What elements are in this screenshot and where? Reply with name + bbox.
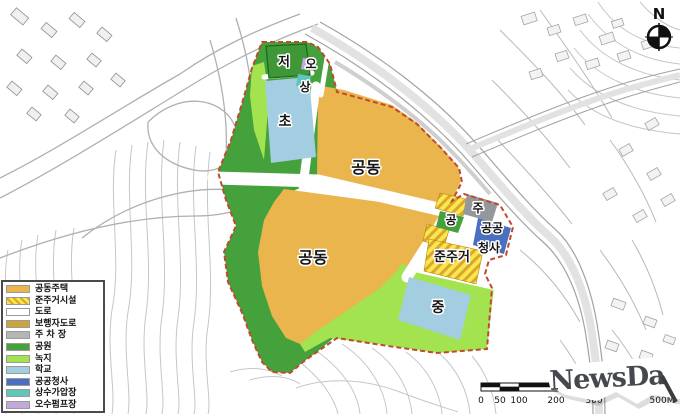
legend-item-parking: 주 차 장: [6, 330, 100, 340]
label-cho: 초: [279, 114, 292, 130]
label-junjugeo: 준주거: [434, 250, 470, 265]
legend-swatch-green-space: [6, 355, 30, 363]
legend-swatch-semi-residential: [6, 297, 30, 305]
legend-swatch-school: [6, 366, 30, 374]
label-cheongsa: 청사: [478, 240, 500, 255]
legend-item-school: 학교: [6, 365, 100, 375]
scale-label-0: 0: [478, 396, 484, 406]
label-gongdong-upper: 공동: [351, 158, 381, 177]
label-gongdong-lower: 공동: [298, 248, 328, 267]
legend-swatch-pedestrian-road: [6, 320, 30, 328]
label-gonggong: 공공: [481, 221, 503, 235]
scale-label-100: 100: [510, 396, 527, 406]
legend-swatch-water-station: [6, 389, 30, 397]
scale-label-50: 50: [494, 396, 505, 406]
legend-swatch-parking: [6, 331, 30, 339]
legend-item-green-space: 녹지: [6, 354, 100, 364]
label-jeo: 저: [278, 55, 290, 70]
urban-plan-map-screenshot: 저 오 상 초 공동 공동 준주거 공 주 공공 청사 중: [0, 0, 680, 414]
legend-item-public-office: 공공청사: [6, 377, 100, 387]
legend-swatch-road: [6, 308, 30, 316]
legend-item-pedestrian-road: 보행자도로: [6, 319, 100, 329]
legend-item-water-station: 상수가압장: [6, 388, 100, 398]
legend-item-semi-residential: 준주거시설: [6, 296, 100, 306]
legend-item-road: 도로: [6, 307, 100, 317]
label-jung: 중: [432, 300, 445, 316]
legend-swatch-apartment: [6, 285, 30, 293]
watermark-text: NewsDa: [549, 360, 666, 397]
site-plan: 저 오 상 초 공동 공동 준주거 공 주 공공 청사 중: [214, 42, 513, 373]
legend: 공동주택 준주거시설 도로 보행자도로 주 차 장 공원 녹지 학교: [1, 280, 105, 413]
label-sang: 상: [299, 79, 310, 94]
legend-item-sewage-station: 오수펌프장: [6, 400, 100, 410]
news-watermark: NewsDa: [538, 350, 680, 410]
legend-item-apartment: 공동주택: [6, 284, 100, 294]
legend-swatch-sewage-station: [6, 401, 30, 409]
label-gong: 공: [445, 213, 456, 227]
label-o: 오: [305, 57, 316, 71]
legend-swatch-public-office: [6, 378, 30, 386]
label-ju: 주: [472, 201, 483, 215]
legend-item-park: 공원: [6, 342, 100, 352]
compass-ne-quadrant: [659, 26, 670, 37]
legend-swatch-park: [6, 343, 30, 351]
north-arrow-label: N: [653, 5, 666, 23]
